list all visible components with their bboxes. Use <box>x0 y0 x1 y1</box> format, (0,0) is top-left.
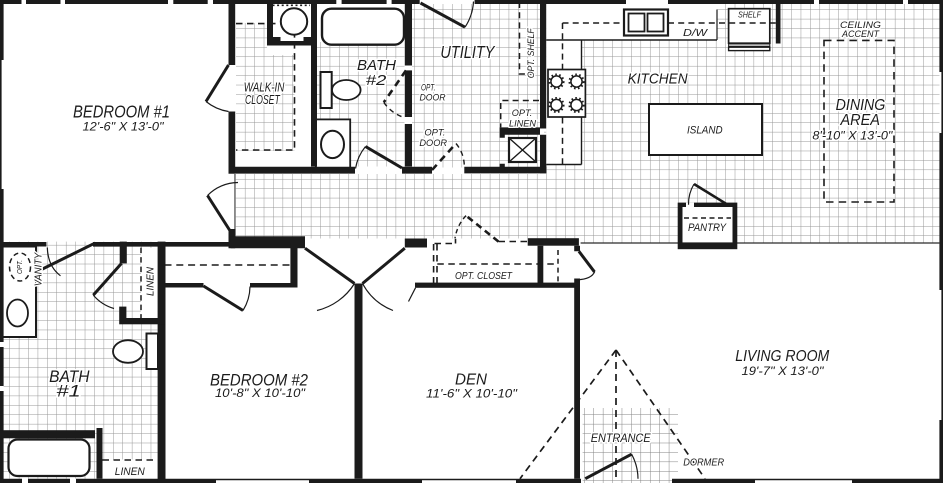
svg-text:CLOSET: CLOSET <box>245 92 281 107</box>
svg-text:DOOR: DOOR <box>419 138 447 148</box>
svg-text:OPT.: OPT. <box>421 83 436 93</box>
svg-text:DOOR: DOOR <box>420 93 446 103</box>
svg-text:#1: #1 <box>56 383 80 401</box>
svg-text:12'-6" X 13'-0": 12'-6" X 13'-0" <box>83 120 165 134</box>
svg-text:ACCENT: ACCENT <box>841 29 880 40</box>
svg-text:VANITY: VANITY <box>33 252 44 287</box>
svg-text:OPT. SHELF: OPT. SHELF <box>526 27 537 78</box>
svg-text:19'-7" X 13'-0": 19'-7" X 13'-0" <box>742 364 825 378</box>
svg-text:AREA: AREA <box>840 112 880 129</box>
svg-text:ISLAND: ISLAND <box>687 124 723 136</box>
svg-text:OPT.: OPT. <box>424 128 445 138</box>
svg-text:10'-8" X 10'-10": 10'-8" X 10'-10" <box>215 386 306 400</box>
svg-text:LIVING ROOM: LIVING ROOM <box>735 348 830 365</box>
svg-text:BEDROOM #1: BEDROOM #1 <box>73 102 170 122</box>
svg-text:UTILITY: UTILITY <box>440 42 495 62</box>
svg-text:D/W: D/W <box>683 28 709 39</box>
svg-text:SHELF: SHELF <box>738 11 762 20</box>
svg-text:LINEN: LINEN <box>145 267 157 296</box>
svg-text:LINEN: LINEN <box>115 466 145 478</box>
svg-text:KITCHEN: KITCHEN <box>628 71 688 88</box>
svg-text:8'-10" X 13'-0": 8'-10" X 13'-0" <box>812 129 893 143</box>
svg-text:#2: #2 <box>366 72 387 89</box>
svg-text:11'-6" X 10'-10": 11'-6" X 10'-10" <box>426 387 518 401</box>
svg-text:LINEN: LINEN <box>509 119 536 130</box>
svg-text:DORMER: DORMER <box>683 457 724 469</box>
svg-text:OPT. CLOSET: OPT. CLOSET <box>455 270 513 282</box>
svg-text:ENTRANCE: ENTRANCE <box>591 433 651 445</box>
svg-text:PANTRY: PANTRY <box>688 222 727 234</box>
svg-text:OPT.: OPT. <box>512 108 533 119</box>
svg-text:OPT.: OPT. <box>15 260 24 274</box>
